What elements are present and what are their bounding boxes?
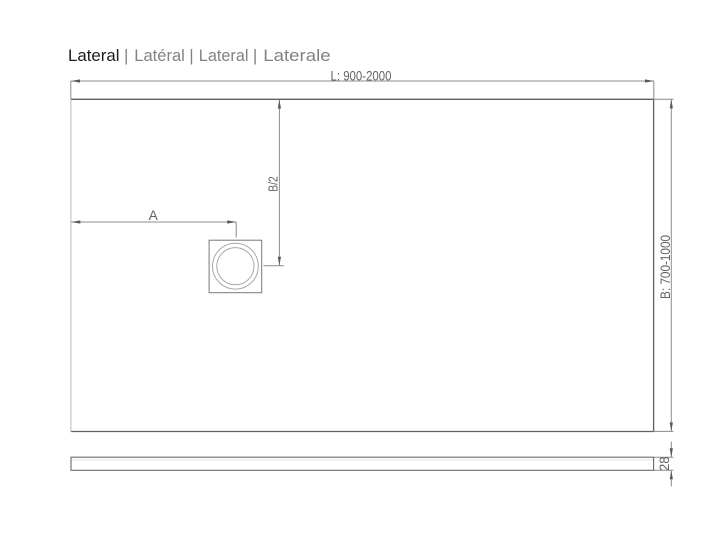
svg-text:L: 900-2000: L: 900-2000 [331,68,392,83]
svg-text:Laterale: Laterale [263,46,330,65]
svg-text:|: | [253,46,257,65]
svg-text:|: | [124,46,128,65]
svg-text:|: | [189,46,193,65]
svg-text:28: 28 [657,456,672,471]
svg-text:B/2: B/2 [266,176,281,192]
svg-text:Latéral: Latéral [134,46,185,65]
svg-text:A: A [149,208,159,223]
svg-text:Lateral: Lateral [68,46,120,65]
svg-text:Lateral: Lateral [199,46,249,65]
svg-text:B: 700-1000: B: 700-1000 [658,235,673,299]
